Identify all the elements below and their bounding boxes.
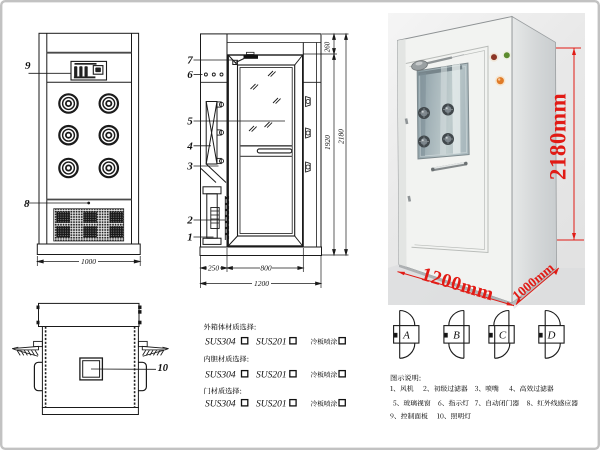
svg-text:SUS201: SUS201 bbox=[256, 338, 287, 348]
svg-text:250: 250 bbox=[208, 264, 220, 273]
svg-text:1200: 1200 bbox=[254, 279, 269, 288]
svg-text:C: C bbox=[499, 329, 507, 341]
svg-text:2: 2 bbox=[186, 215, 193, 227]
svg-text:800: 800 bbox=[260, 264, 272, 273]
svg-text:D: D bbox=[547, 329, 556, 341]
svg-text:SUS304: SUS304 bbox=[205, 371, 236, 381]
svg-text:6: 6 bbox=[187, 69, 193, 81]
svg-text:1920: 1920 bbox=[323, 135, 332, 150]
svg-text:1: 1 bbox=[187, 232, 193, 244]
svg-text:SUS201: SUS201 bbox=[256, 400, 287, 410]
svg-text:4: 4 bbox=[186, 140, 193, 152]
svg-text:SUS304: SUS304 bbox=[205, 400, 236, 410]
svg-text:2180mm: 2180mm bbox=[546, 93, 571, 180]
svg-text:2180: 2180 bbox=[337, 129, 346, 144]
svg-text:SUS304: SUS304 bbox=[205, 338, 236, 348]
svg-text:3: 3 bbox=[186, 161, 193, 173]
svg-text:B: B bbox=[453, 329, 460, 341]
svg-text:8: 8 bbox=[24, 198, 30, 210]
svg-text:10: 10 bbox=[158, 363, 169, 374]
svg-text:1000: 1000 bbox=[81, 257, 96, 266]
svg-text:260: 260 bbox=[324, 41, 332, 52]
svg-text:SUS201: SUS201 bbox=[256, 371, 287, 381]
svg-text:5: 5 bbox=[187, 116, 193, 128]
svg-text:9: 9 bbox=[25, 60, 31, 72]
svg-text:7: 7 bbox=[187, 55, 193, 67]
svg-text:A: A bbox=[402, 329, 410, 341]
